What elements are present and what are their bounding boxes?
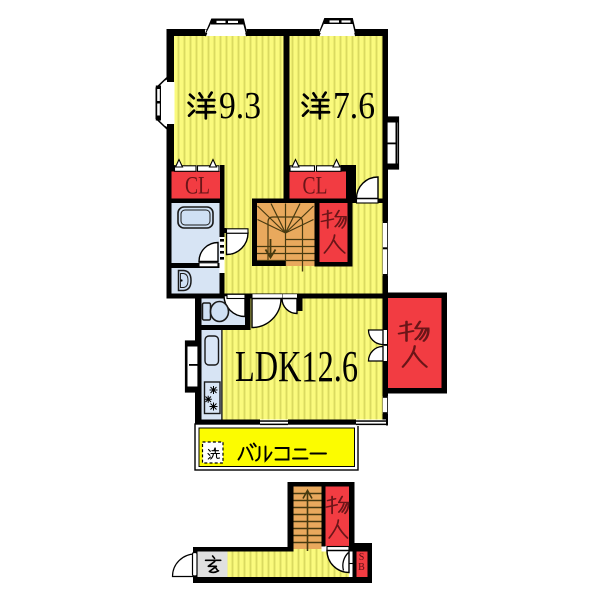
svg-text:CL: CL: [303, 173, 328, 200]
svg-text:B: B: [358, 562, 365, 573]
svg-text:LDK12.6: LDK12.6: [235, 342, 358, 391]
svg-text:7.6: 7.6: [333, 85, 375, 127]
svg-text:9.3: 9.3: [219, 85, 261, 127]
svg-text:CL: CL: [185, 173, 210, 200]
